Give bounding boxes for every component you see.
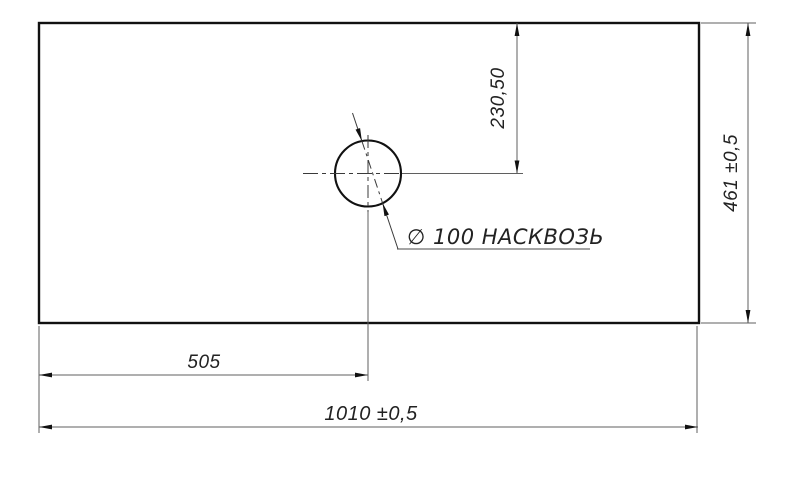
hole-callout-label: ∅ 100 НАСКВОЗЬ (407, 225, 604, 249)
dim-panel-width: 1010 ±0,5 (39, 403, 698, 427)
dim-panel-height: 461 ±0,5 (721, 23, 748, 323)
dim-label-panel-height: 461 ±0,5 (721, 134, 742, 212)
technical-drawing: 230,50 461 ±0,5 505 1010 ±0,5 ∅ 100 НАСК… (0, 0, 800, 491)
dim-label-hole-offset-left: 505 (187, 352, 220, 373)
dim-label-panel-width: 1010 ±0,5 (324, 403, 418, 425)
dim-label-hole-offset-top: 230,50 (488, 67, 509, 129)
dim-hole-offset-left: 505 (39, 352, 368, 375)
drawing-canvas: 230,50 461 ±0,5 505 1010 ±0,5 ∅ 100 НАСК… (0, 0, 800, 491)
